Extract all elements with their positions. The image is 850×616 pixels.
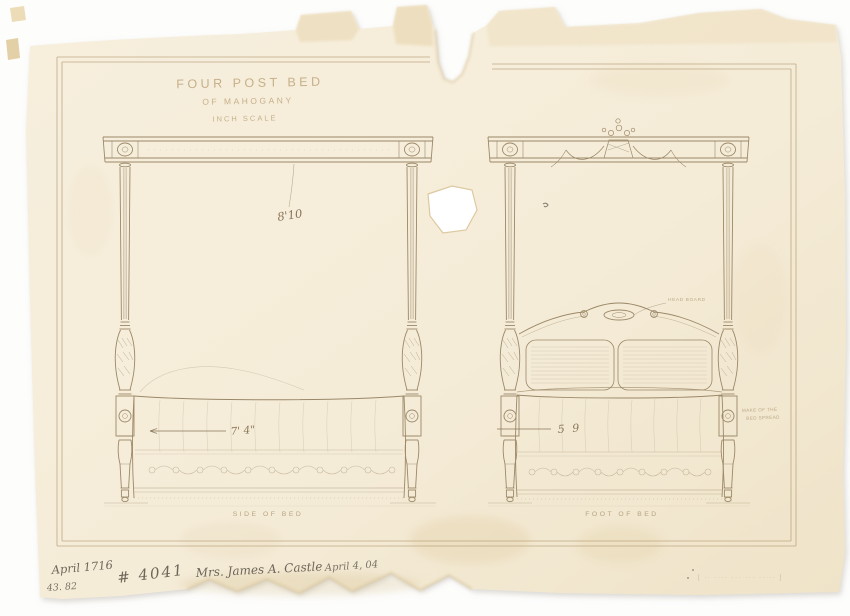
drawing-sheet-scan: FOUR POST BED OF MAHOGANY INCH SCALE bbox=[0, 0, 850, 616]
foot-view-caption: FOOT OF BED bbox=[585, 511, 658, 518]
scanned-drawing-page: FOUR POST BED OF MAHOGANY INCH SCALE bbox=[0, 0, 850, 616]
headboard-label: HEAD BOARD bbox=[668, 297, 706, 303]
paper-sheet bbox=[26, 5, 846, 599]
paper-fragments bbox=[6, 6, 26, 60]
faint-stamp: [ ·· ···· ··· ··· ····· ] bbox=[698, 575, 783, 581]
pencil-speck bbox=[692, 569, 694, 571]
inscription-number-left: 43. 82 bbox=[45, 581, 77, 594]
side-view-caption: SIDE OF BED bbox=[233, 511, 304, 518]
side-length-dim: 7' 4" bbox=[230, 424, 255, 438]
pencil-speck bbox=[687, 577, 689, 579]
title-line3: INCH SCALE bbox=[212, 113, 277, 123]
title-line1: FOUR POST BED bbox=[176, 75, 324, 92]
foot-width-dim: 5 9 bbox=[557, 421, 581, 436]
title-line2: OF MAHOGANY bbox=[202, 95, 293, 107]
